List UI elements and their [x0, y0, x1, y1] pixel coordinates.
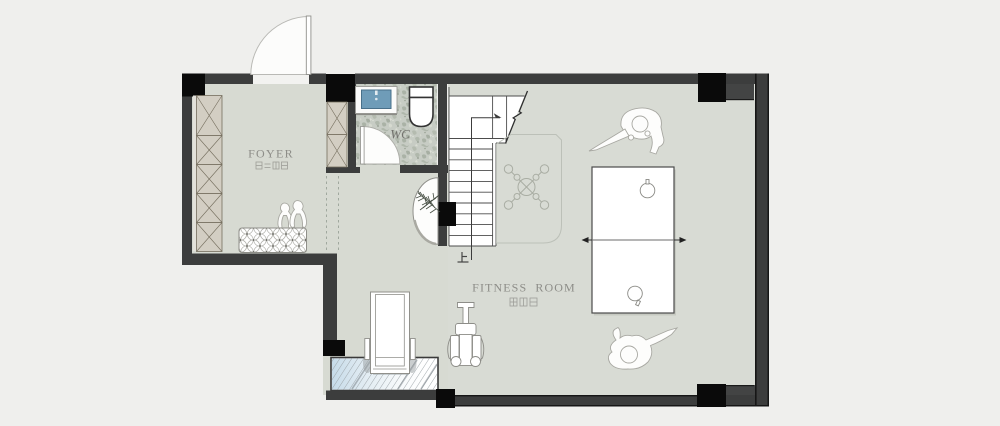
- svg-text:WC: WC: [390, 127, 410, 142]
- svg-text:FITNESS ROOM: FITNESS ROOM: [472, 281, 576, 295]
- svg-text:FOYER: FOYER: [248, 147, 294, 161]
